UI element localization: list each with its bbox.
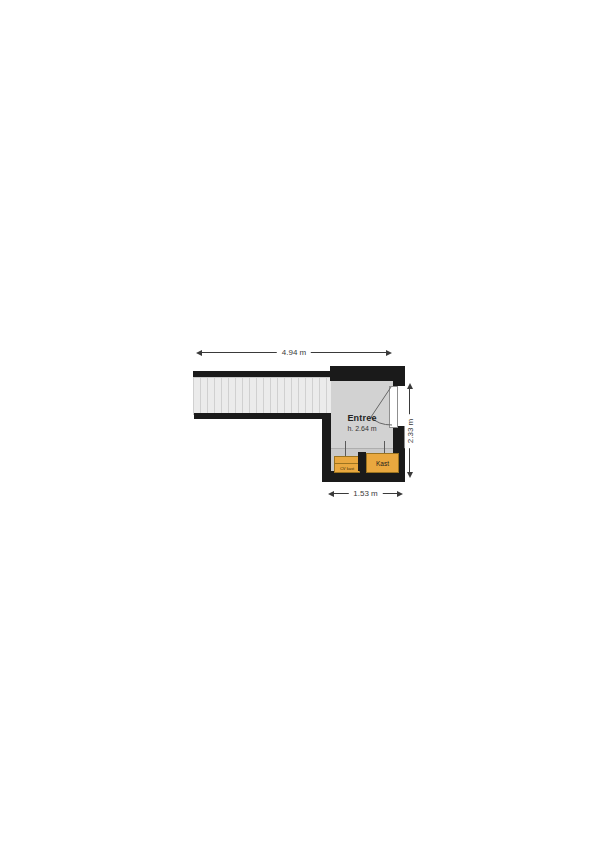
closet-wall-stub <box>358 452 366 471</box>
arrow-left-icon <box>196 350 202 356</box>
arrow-down-icon <box>407 472 413 478</box>
room-ceiling-height-label: h. 2.64 m <box>331 424 393 433</box>
arrow-left-icon <box>328 491 334 497</box>
cv-closet-label: CV kast <box>335 466 359 471</box>
arrow-right-icon <box>397 491 403 497</box>
floorplan-canvas: 4.94 m CV kast Kast <box>0 0 600 849</box>
floorplan: 4.94 m CV kast Kast <box>0 0 600 849</box>
dimension-top: 4.94 m <box>196 347 392 358</box>
arrow-right-icon <box>386 350 392 356</box>
dimension-right: 2.33 m <box>404 383 415 478</box>
dimension-top-label: 4.94 m <box>277 347 311 358</box>
staircase <box>193 377 332 415</box>
room-label-block: Entree h. 2.64 m <box>331 413 393 433</box>
closet-shelf-line <box>335 463 359 464</box>
dimension-right-label: 2.33 m <box>404 413 415 447</box>
corridor-bottom-wall <box>194 413 331 419</box>
corridor-top-wall <box>193 371 330 377</box>
room-top-wall <box>330 366 405 381</box>
room-left-wall <box>322 413 331 470</box>
kast-closet-label: Kast <box>367 460 398 467</box>
kast-closet: Kast <box>366 453 399 473</box>
cv-closet: CV kast <box>334 456 360 473</box>
arrow-up-icon <box>407 383 413 389</box>
dimension-bottom: 1.53 m <box>328 488 403 499</box>
dimension-bottom-label: 1.53 m <box>348 488 382 499</box>
room-name-label: Entree <box>331 413 393 424</box>
closet-door-tick-left <box>345 441 346 456</box>
